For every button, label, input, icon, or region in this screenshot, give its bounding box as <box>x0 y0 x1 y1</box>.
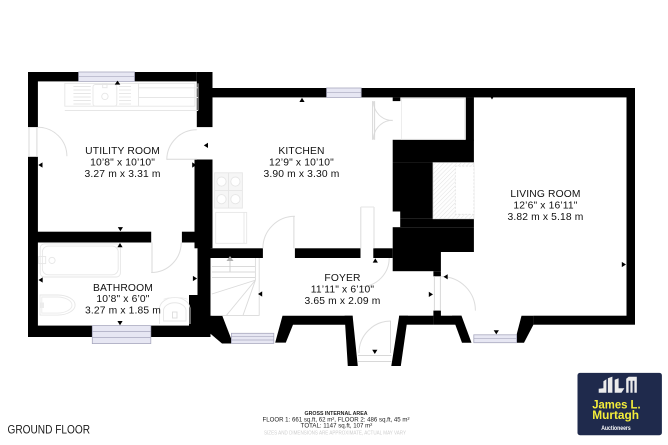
svg-text:BATHROOM: BATHROOM <box>93 283 153 294</box>
svg-text:KITCHEN: KITCHEN <box>278 146 324 157</box>
svg-text:Murtagh: Murtagh <box>592 408 639 422</box>
svg-text:SIZES AND DIMENSIONS ARE APPRO: SIZES AND DIMENSIONS ARE APPROXIMATE, AC… <box>264 431 407 437</box>
svg-text:3.82 m x 5.18 m: 3.82 m x 5.18 m <box>507 212 583 223</box>
svg-text:10’8" x 6’0": 10’8" x 6’0" <box>96 294 149 305</box>
svg-text:Auctioneers: Auctioneers <box>601 425 631 432</box>
svg-text:GROUND FLOOR: GROUND FLOOR <box>8 425 91 437</box>
svg-text:UTILITY ROOM: UTILITY ROOM <box>85 146 160 157</box>
svg-text:TOTAL: 1147 sq.ft, 107 m²: TOTAL: 1147 sq.ft, 107 m² <box>301 422 373 429</box>
svg-text:12’9" x 10’10": 12’9" x 10’10" <box>269 158 334 169</box>
svg-text:FOYER: FOYER <box>324 273 360 284</box>
svg-text:3.27 m x 3.31 m: 3.27 m x 3.31 m <box>85 169 161 180</box>
svg-text:3.90 m x 3.30 m: 3.90 m x 3.30 m <box>263 169 339 180</box>
svg-text:11’11" x 6’10": 11’11" x 6’10" <box>311 285 375 296</box>
svg-text:3.27 m x 1.85 m: 3.27 m x 1.85 m <box>85 305 161 316</box>
svg-text:3.65 m x 2.09 m: 3.65 m x 2.09 m <box>304 296 380 307</box>
svg-text:12’6" x 16’11": 12’6" x 16’11" <box>513 201 577 212</box>
svg-text:10’8" x 10’10": 10’8" x 10’10" <box>90 158 155 169</box>
svg-text:LIVING ROOM: LIVING ROOM <box>510 189 580 200</box>
